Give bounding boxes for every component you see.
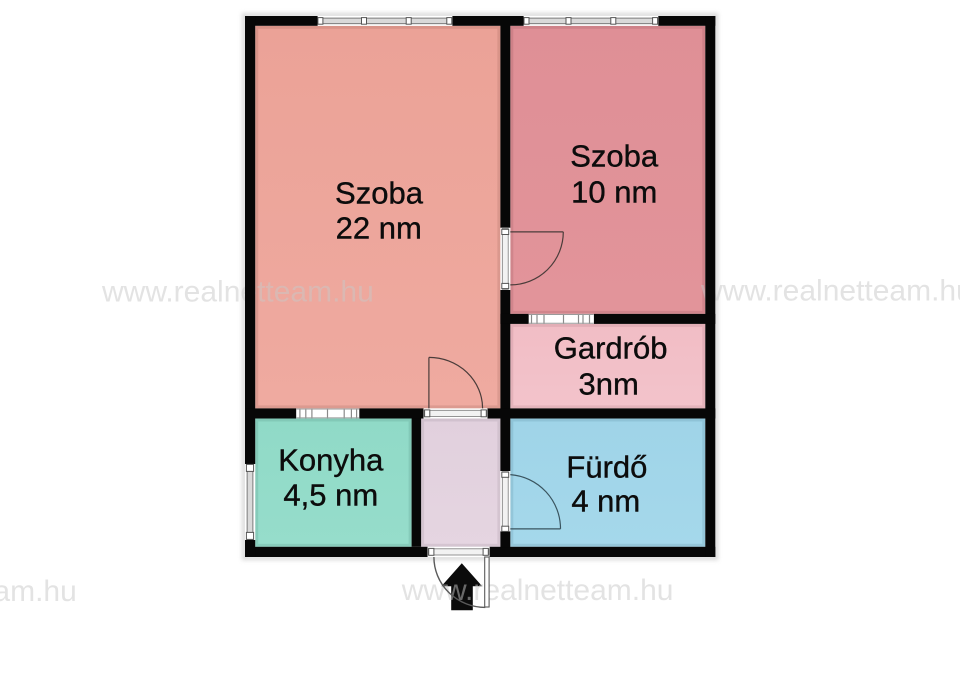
svg-text:www.realnetteam.hu: www.realnetteam.hu: [0, 575, 77, 608]
svg-text:Szoba: Szoba: [335, 175, 424, 210]
svg-text:10 nm: 10 nm: [571, 175, 657, 210]
svg-text:3nm: 3nm: [579, 367, 639, 402]
svg-text:www.realnetteam.hu: www.realnetteam.hu: [401, 574, 674, 607]
svg-text:4 nm: 4 nm: [571, 483, 640, 518]
svg-text:www.realnetteam.hu: www.realnetteam.hu: [101, 276, 374, 309]
svg-text:Konyha: Konyha: [278, 442, 384, 477]
svg-text:Fürdő: Fürdő: [566, 450, 647, 485]
svg-text:Gardrób: Gardrób: [554, 331, 668, 366]
svg-text:4,5 nm: 4,5 nm: [283, 478, 378, 513]
svg-text:www.realnetteam.hu: www.realnetteam.hu: [700, 275, 960, 308]
svg-text:22 nm: 22 nm: [336, 211, 422, 246]
svg-text:Szoba: Szoba: [570, 139, 659, 174]
